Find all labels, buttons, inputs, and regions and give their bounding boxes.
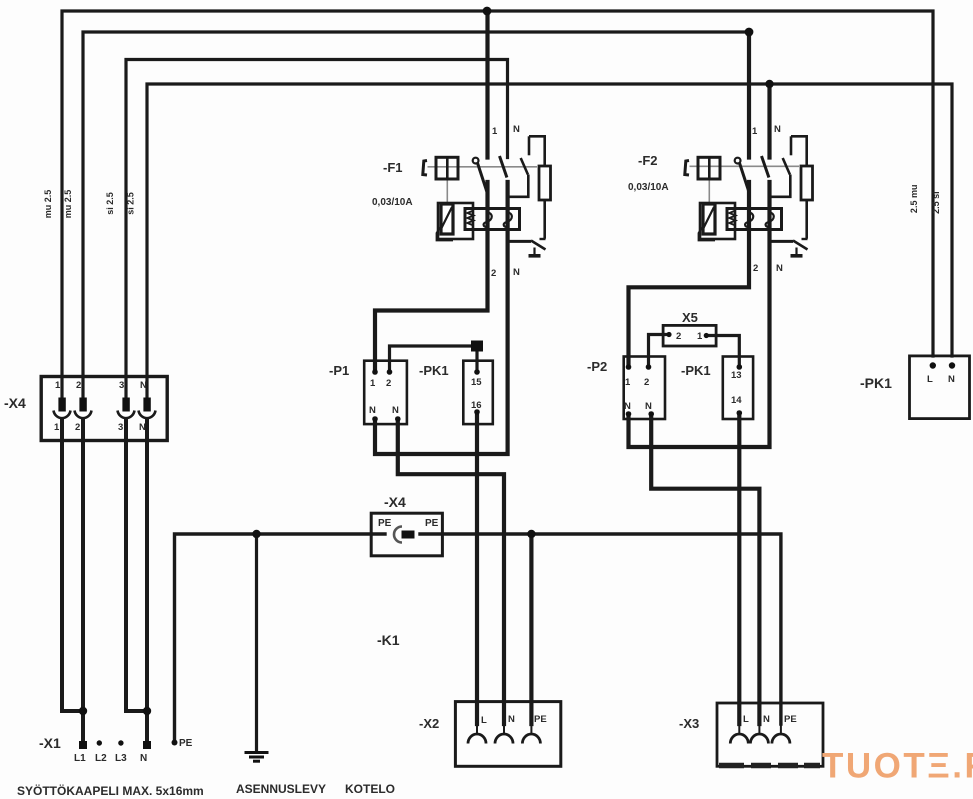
svg-text:-PK1: -PK1 xyxy=(681,363,711,378)
svg-text:ASENNUSLEVY: ASENNUSLEVY xyxy=(236,782,326,796)
svg-text:1: 1 xyxy=(370,378,376,389)
svg-text:N: N xyxy=(774,124,781,135)
svg-text:0,03/10A: 0,03/10A xyxy=(372,197,413,208)
svg-text:N: N xyxy=(392,405,399,416)
svg-text:0,03/10A: 0,03/10A xyxy=(628,182,669,193)
svg-text:1: 1 xyxy=(54,422,60,433)
svg-text:N: N xyxy=(645,401,652,412)
svg-text:-X2: -X2 xyxy=(419,716,439,731)
svg-text:KOTELO: KOTELO xyxy=(345,782,395,796)
svg-text:2: 2 xyxy=(76,380,81,391)
svg-text:2: 2 xyxy=(75,422,80,433)
svg-text:1: 1 xyxy=(492,126,498,137)
svg-text:L1: L1 xyxy=(74,753,86,764)
svg-text:PE: PE xyxy=(378,518,392,529)
svg-text:N: N xyxy=(369,405,376,416)
svg-text:-P1: -P1 xyxy=(329,363,349,378)
svg-text:1: 1 xyxy=(625,377,631,388)
svg-text:14: 14 xyxy=(731,395,742,406)
svg-text:mu 2.5: mu 2.5 xyxy=(43,190,53,219)
svg-text:-X1: -X1 xyxy=(39,735,61,751)
svg-text:-PK1: -PK1 xyxy=(860,375,892,391)
svg-text:13: 13 xyxy=(731,370,742,381)
svg-text:2: 2 xyxy=(644,377,649,388)
svg-text:L: L xyxy=(743,714,749,725)
svg-text:-X3: -X3 xyxy=(679,716,699,731)
svg-text:L: L xyxy=(481,715,487,726)
svg-text:-F2: -F2 xyxy=(638,153,658,168)
svg-text:N: N xyxy=(140,753,147,764)
svg-text:L: L xyxy=(927,374,933,385)
svg-text:N: N xyxy=(624,401,631,412)
svg-text:-X4: -X4 xyxy=(4,395,26,411)
svg-text:-PK1: -PK1 xyxy=(419,363,449,378)
svg-text:PE: PE xyxy=(534,714,547,725)
svg-text:-P2: -P2 xyxy=(587,359,607,374)
svg-text:mu 2.5: mu 2.5 xyxy=(63,190,73,219)
svg-text:3: 3 xyxy=(119,380,124,391)
svg-text:2: 2 xyxy=(676,331,681,342)
svg-text:N: N xyxy=(508,714,515,725)
svg-text:3: 3 xyxy=(118,422,123,433)
svg-text:16: 16 xyxy=(471,400,482,411)
svg-text:N: N xyxy=(776,263,783,274)
svg-text:L3: L3 xyxy=(115,753,127,764)
svg-text:-K1: -K1 xyxy=(377,632,400,648)
svg-text:2: 2 xyxy=(491,268,496,279)
svg-text:2.5 si: 2.5 si xyxy=(931,191,941,214)
svg-text:si 2.5: si 2.5 xyxy=(126,192,136,215)
svg-text:-F1: -F1 xyxy=(383,160,403,175)
svg-text:15: 15 xyxy=(471,377,482,388)
svg-text:2: 2 xyxy=(386,378,391,389)
svg-text:L2: L2 xyxy=(95,753,107,764)
svg-text:N: N xyxy=(763,714,770,725)
svg-text:1: 1 xyxy=(752,126,758,137)
svg-text:SYÖTTÖKAAPELI MAX. 5x16mm: SYÖTTÖKAAPELI MAX. 5x16mm xyxy=(17,783,204,798)
svg-text:PE: PE xyxy=(425,518,439,529)
svg-text:si 2.5: si 2.5 xyxy=(105,192,115,215)
svg-text:1: 1 xyxy=(697,331,703,342)
svg-text:N: N xyxy=(139,422,146,433)
svg-text:1: 1 xyxy=(55,380,61,391)
svg-text:N: N xyxy=(140,380,147,391)
svg-text:X5: X5 xyxy=(682,310,698,325)
svg-text:PE: PE xyxy=(179,738,193,749)
svg-text:2.5 mu: 2.5 mu xyxy=(909,185,919,214)
svg-text:TUOTΞ.FI: TUOTΞ.FI xyxy=(822,747,973,786)
svg-text:N: N xyxy=(513,124,520,135)
svg-text:N: N xyxy=(513,267,520,278)
svg-text:PE: PE xyxy=(784,714,797,725)
svg-text:N: N xyxy=(948,374,955,385)
svg-text:2: 2 xyxy=(753,263,758,274)
svg-text:-X4: -X4 xyxy=(384,494,406,510)
